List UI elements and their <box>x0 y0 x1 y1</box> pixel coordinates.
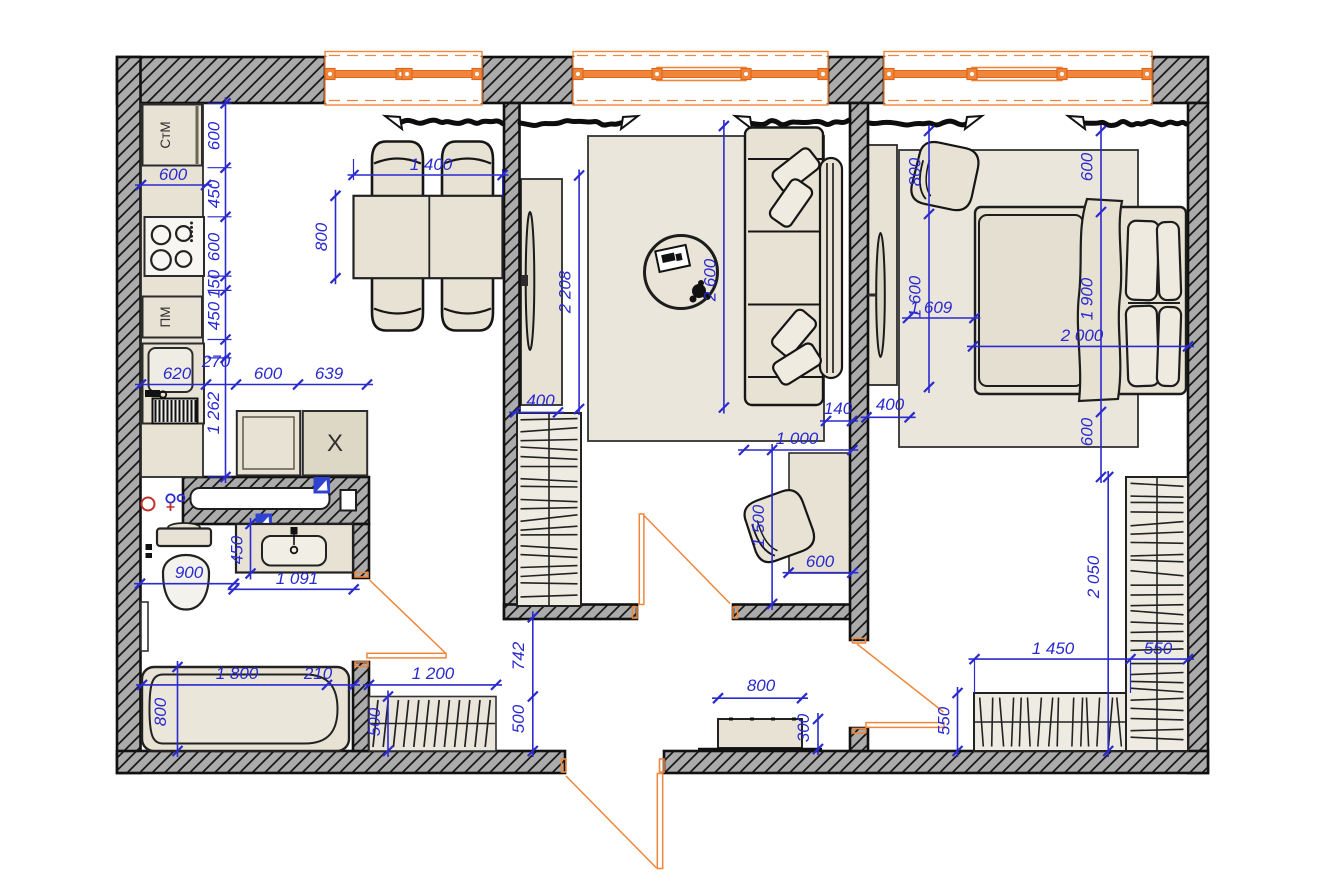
svg-text:1 000: 1 000 <box>776 429 819 448</box>
svg-text:639: 639 <box>315 364 344 383</box>
svg-text:600: 600 <box>254 364 283 383</box>
svg-text:620: 620 <box>163 364 192 383</box>
svg-text:550: 550 <box>1144 639 1173 658</box>
svg-text:ПМ: ПМ <box>158 307 173 328</box>
svg-text:1 500: 1 500 <box>749 504 768 547</box>
svg-text:1 800: 1 800 <box>216 664 259 683</box>
svg-text:450: 450 <box>205 301 224 330</box>
svg-text:600: 600 <box>205 121 224 150</box>
svg-text:1 400: 1 400 <box>410 155 453 174</box>
svg-text:1 200: 1 200 <box>412 664 455 683</box>
svg-text:800: 800 <box>906 157 925 186</box>
svg-text:150: 150 <box>205 269 224 298</box>
svg-text:1 900: 1 900 <box>1078 277 1097 320</box>
svg-text:X: X <box>327 430 343 457</box>
svg-text:140: 140 <box>824 399 853 418</box>
svg-text:210: 210 <box>303 664 333 683</box>
svg-text:1 262: 1 262 <box>204 391 223 434</box>
svg-text:270: 270 <box>201 352 231 371</box>
svg-text:1 091: 1 091 <box>276 569 319 588</box>
svg-text:800: 800 <box>151 697 170 726</box>
svg-text:600: 600 <box>1078 152 1097 181</box>
svg-text:550: 550 <box>935 706 954 735</box>
svg-text:600: 600 <box>205 232 224 261</box>
svg-text:800: 800 <box>312 222 331 251</box>
svg-text:600: 600 <box>1078 417 1097 446</box>
svg-text:800: 800 <box>747 676 776 695</box>
svg-text:2 000: 2 000 <box>1060 326 1104 345</box>
svg-text:450: 450 <box>228 535 247 564</box>
svg-text:2 050: 2 050 <box>1084 555 1103 599</box>
svg-text:2 600: 2 600 <box>701 258 720 302</box>
svg-text:900: 900 <box>175 563 204 582</box>
svg-text:400: 400 <box>526 391 555 410</box>
svg-text:300: 300 <box>794 713 813 742</box>
svg-text:СтМ: СтМ <box>158 121 173 148</box>
svg-text:500: 500 <box>509 704 528 733</box>
svg-text:2 208: 2 208 <box>556 270 575 314</box>
svg-text:600: 600 <box>806 552 835 571</box>
svg-text:400: 400 <box>876 395 905 414</box>
svg-text:742: 742 <box>509 641 528 670</box>
svg-text:600: 600 <box>159 165 188 184</box>
svg-text:500: 500 <box>365 707 384 736</box>
svg-text:1 450: 1 450 <box>1032 639 1075 658</box>
svg-text:1 609: 1 609 <box>910 298 953 317</box>
